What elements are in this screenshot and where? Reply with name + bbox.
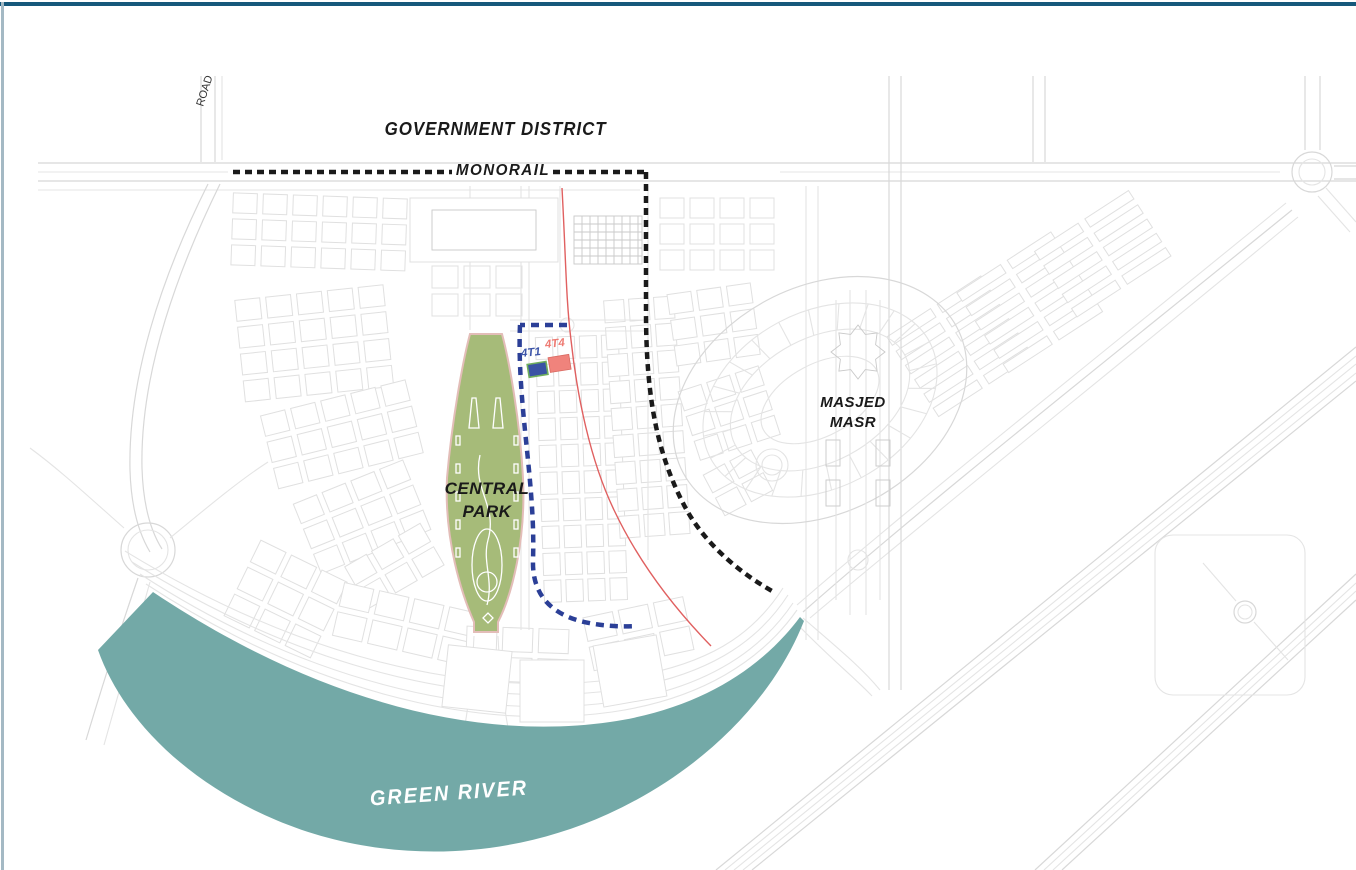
master-plan-map: GOVERNMENT DISTRICT MONORAIL ROAD CENTRA… (0, 0, 1356, 870)
mosque-complex (826, 290, 890, 615)
plot-4t1-marker (527, 362, 548, 378)
plot-4t4-marker (548, 354, 571, 372)
frame-top-border (0, 2, 1356, 6)
frame-left-border (1, 2, 4, 870)
masjed-label-line2: MASR (792, 413, 914, 433)
map-canvas (0, 0, 1356, 870)
central-park-label-line1: CENTRAL (417, 477, 557, 500)
monorail-label: MONORAIL (446, 162, 560, 180)
central-park-label: CENTRAL PARK (417, 477, 557, 523)
masjed-masr-label: MASJED MASR (792, 393, 914, 433)
masjed-label-line1: MASJED (792, 393, 914, 413)
plot-4t1-label: 4T1 (520, 346, 541, 360)
plot-4t4-label: 4T4 (544, 337, 565, 351)
government-district-label: GOVERNMENT DISTRICT (385, 119, 594, 140)
hatched-building (574, 216, 642, 264)
central-park-label-line2: PARK (417, 500, 557, 523)
